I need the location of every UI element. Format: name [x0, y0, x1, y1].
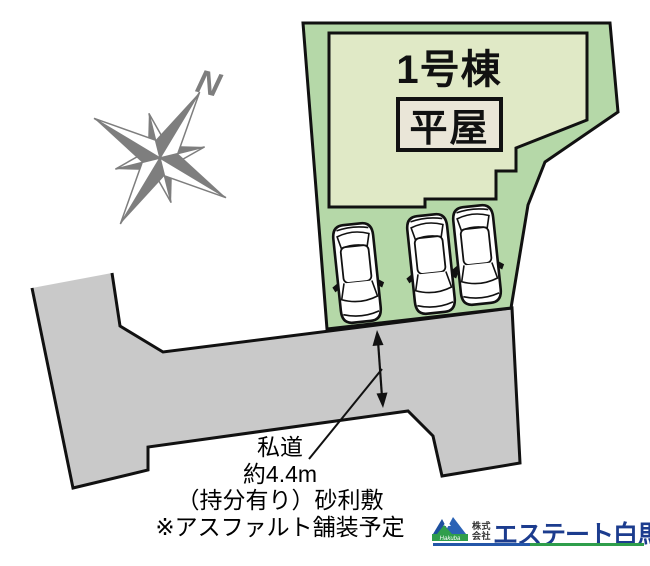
road-note-line-4: ※アスファルト舗装予定 [118, 514, 442, 541]
company-prefix-line-2: 会社 [472, 532, 491, 542]
road-note-line-2: 約4.4m [118, 461, 442, 488]
logo-underline [433, 543, 644, 546]
mountain-script-label: Hakuba [440, 536, 461, 542]
company-logo: Hakuba 株式 会社 エステート白馬 [430, 513, 648, 557]
logo-underline-blue [433, 543, 530, 546]
site-plan-canvas: N 1号棟 平屋 私道 約4.4m （持分有り）砂利敷 ※アスファルト舗装予定 … [0, 0, 650, 566]
company-prefix: 株式 会社 [472, 522, 491, 541]
building-number-label: 1号棟 [378, 47, 520, 93]
road-note-line-1: 私道 [118, 434, 442, 461]
compass-north-label: N [193, 62, 226, 104]
building-type-badge: 平屋 [396, 97, 503, 152]
logo-underline-green [530, 543, 644, 546]
road-note: 私道 約4.4m （持分有り）砂利敷 ※アスファルト舗装予定 [118, 434, 442, 540]
compass-rose-icon: N [54, 52, 265, 263]
mountain-logo-icon: Hakuba [432, 516, 470, 543]
road-note-line-3: （持分有り）砂利敷 [118, 487, 442, 514]
